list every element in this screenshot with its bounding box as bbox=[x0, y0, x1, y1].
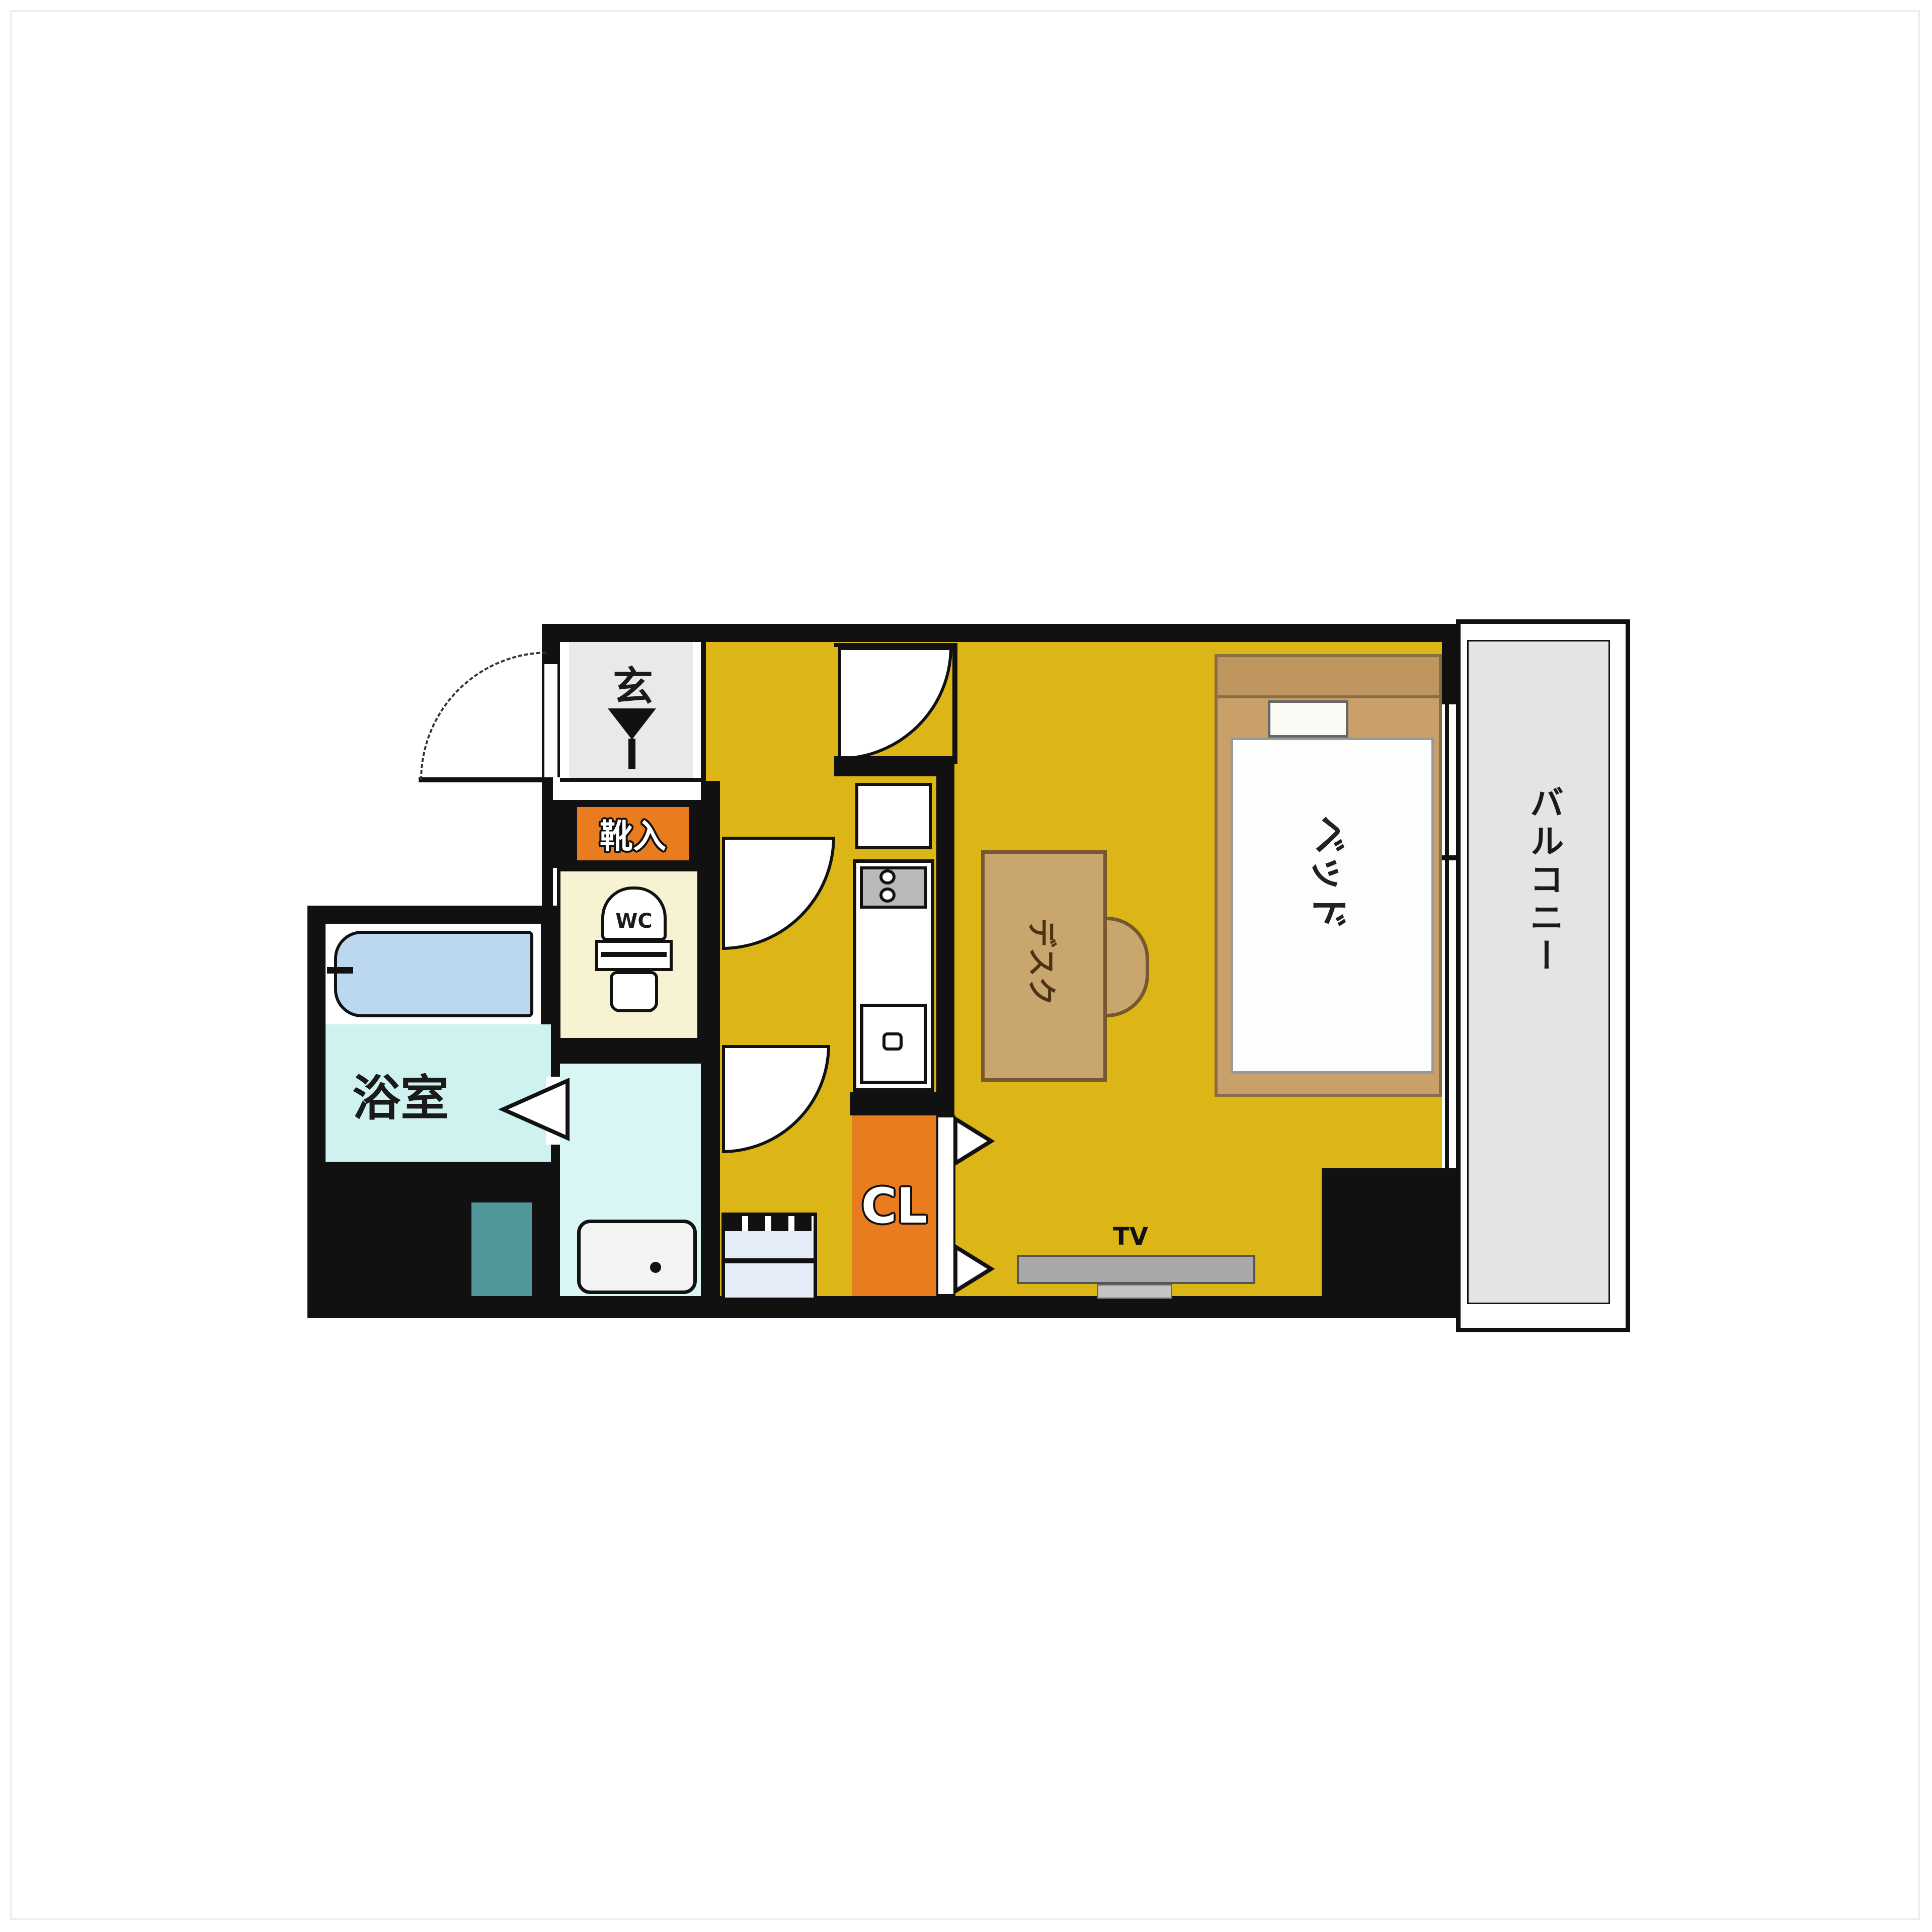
floorplan-page: 浴室 玄 靴入 WC bbox=[0, 0, 1932, 1932]
closet-folding-door-top-icon bbox=[955, 1119, 991, 1163]
bathroom-folding-door-icon bbox=[503, 1081, 568, 1138]
closet-folding-door-bottom-icon bbox=[955, 1247, 991, 1291]
folding-door-symbols bbox=[0, 0, 1932, 1932]
